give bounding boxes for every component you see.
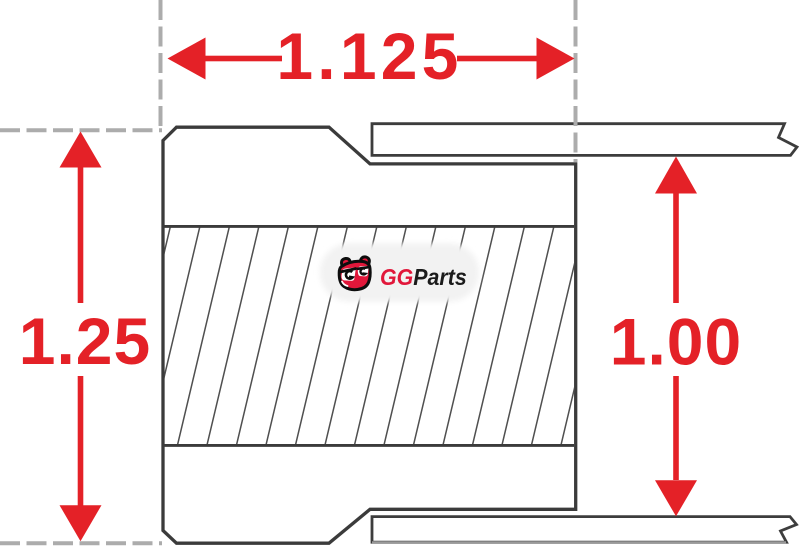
svg-text:1.25: 1.25: [19, 304, 151, 378]
svg-text:GGParts: GGParts: [380, 264, 467, 290]
svg-text:1.00: 1.00: [610, 305, 742, 379]
svg-text:1.125: 1.125: [276, 19, 462, 93]
